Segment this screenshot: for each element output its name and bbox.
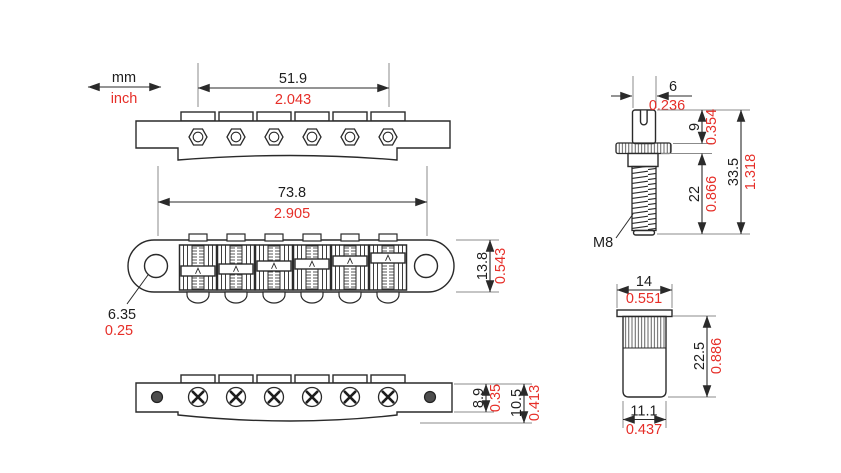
dim-overall-height-mm: 10.5 xyxy=(509,389,525,417)
dim-bridge-width-inch: 0.543 xyxy=(493,248,509,284)
legend-imperial-label: inch xyxy=(111,91,138,107)
dim-stud-overall-inch: 1.318 xyxy=(743,154,759,190)
stud-view: M8 xyxy=(593,110,671,251)
bushing-view xyxy=(617,310,672,397)
dim-plate-height-mm: 8.9 xyxy=(471,388,487,408)
dim-bushing-body-mm: 11.1 xyxy=(630,404,657,420)
front-saddle-tabs xyxy=(181,112,405,121)
callout-post-hole: 6.35 0.25 xyxy=(105,275,148,339)
front-body xyxy=(136,121,450,160)
dim-post-spacing: 73.8 2.905 xyxy=(158,166,427,236)
dim-bushing-flange: 14 0.551 xyxy=(617,274,672,308)
stud-tip xyxy=(634,231,655,236)
dim-bushing-length: 22.5 0.886 xyxy=(668,316,725,397)
plan-post-hole-left xyxy=(145,255,168,278)
dim-stud-tip-inch: 0.236 xyxy=(649,98,685,114)
dim-plate-height-inch: 0.35 xyxy=(488,384,504,412)
bridge-plan-view xyxy=(128,234,454,303)
legend-metric-label: mm xyxy=(112,70,136,86)
dim-stud-tip-mm: 6 xyxy=(669,79,677,95)
thread-leader-line xyxy=(616,214,633,238)
dim-bushing-flange-mm: 14 xyxy=(636,274,652,290)
dim-bushing-flange-inch: 0.551 xyxy=(626,291,662,307)
bushing-flange xyxy=(617,310,672,317)
bridge-bottom-view xyxy=(136,375,452,421)
bridge-front-view xyxy=(136,112,450,160)
dim-stud-head-inch: 0.354 xyxy=(704,109,720,145)
dim-saddle-spread-mm: 51.9 xyxy=(279,71,307,87)
dim-stud-overall-length: 33.5 1.318 xyxy=(726,110,759,234)
bridge-technical-drawing: mm inch 51.9 2.043 xyxy=(0,0,841,473)
bottom-pivot-right xyxy=(425,392,436,403)
dim-saddle-spread-inch: 2.043 xyxy=(275,92,311,108)
units-legend: mm inch xyxy=(88,70,161,107)
dim-bushing-body: 11.1 0.437 xyxy=(623,401,666,438)
dim-post-hole-mm: 6.35 xyxy=(108,307,136,323)
dim-bridge-width-mm: 13.8 xyxy=(475,252,491,280)
dim-stud-head-mm: 9 xyxy=(687,123,703,131)
dim-stud-overall-mm: 33.5 xyxy=(726,158,742,186)
thread-size-label: M8 xyxy=(593,235,613,251)
dim-bushing-body-inch: 0.437 xyxy=(626,422,662,438)
dim-post-spacing-mm: 73.8 xyxy=(278,185,306,201)
stud-collar xyxy=(628,154,658,167)
bottom-pivot-left xyxy=(152,392,163,403)
bottom-saddle-tabs xyxy=(181,375,405,383)
dim-post-spacing-inch: 2.905 xyxy=(274,206,310,222)
plan-post-hole-right xyxy=(415,255,438,278)
dim-bushing-length-inch: 0.886 xyxy=(709,338,725,374)
technical-drawing-page: mm inch 51.9 2.043 xyxy=(0,0,841,473)
dim-stud-tip-diameter: 6 0.236 xyxy=(611,76,692,114)
dim-post-hole-inch: 0.25 xyxy=(105,323,133,339)
dim-saddle-spread: 51.9 2.043 xyxy=(198,63,389,108)
stud-thumbwheel xyxy=(616,143,671,154)
bottom-body xyxy=(136,383,452,421)
dim-bridge-width: 13.8 0.543 xyxy=(456,240,509,292)
dim-bushing-length-mm: 22.5 xyxy=(692,342,708,370)
dim-overall-height-inch: 0.413 xyxy=(527,385,543,421)
stud-slot xyxy=(641,111,648,125)
dim-stud-thread-mm: 22 xyxy=(687,186,703,202)
dim-stud-thread-inch: 0.866 xyxy=(704,176,720,212)
dim-stud-head-height: 9 0.354 xyxy=(657,109,750,145)
stud-threaded-shaft xyxy=(632,167,656,231)
bushing-knurl xyxy=(624,317,666,348)
